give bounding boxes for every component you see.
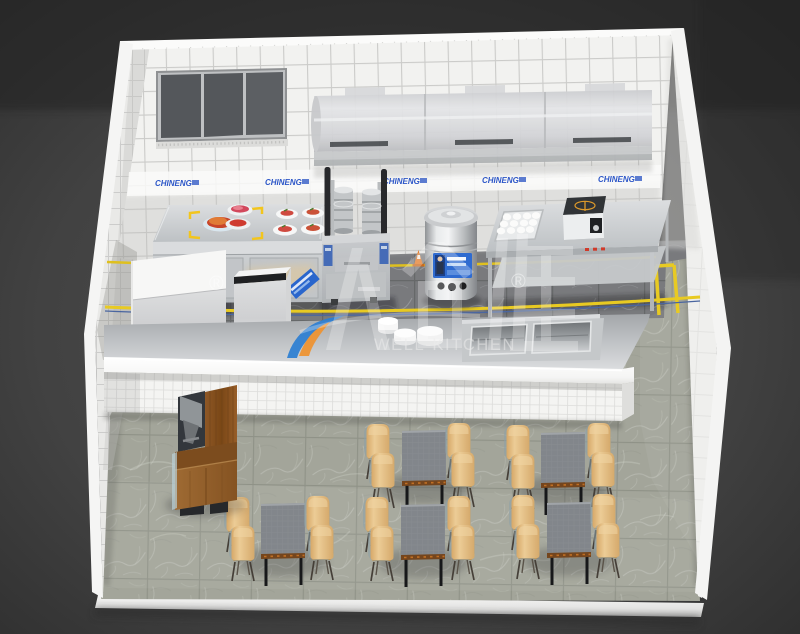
svg-text:CHINENG: CHINENG [265,178,302,187]
svg-text:WELL-KITCHEN: WELL-KITCHEN [374,336,516,354]
svg-text:®: ® [209,273,224,295]
svg-text:®: ® [511,271,526,293]
svg-text:CHINENG: CHINENG [383,177,420,186]
svg-text:CHINENG: CHINENG [598,175,635,184]
svg-text:CHINENG: CHINENG [155,179,192,188]
svg-text:CHINENG: CHINENG [482,176,519,185]
